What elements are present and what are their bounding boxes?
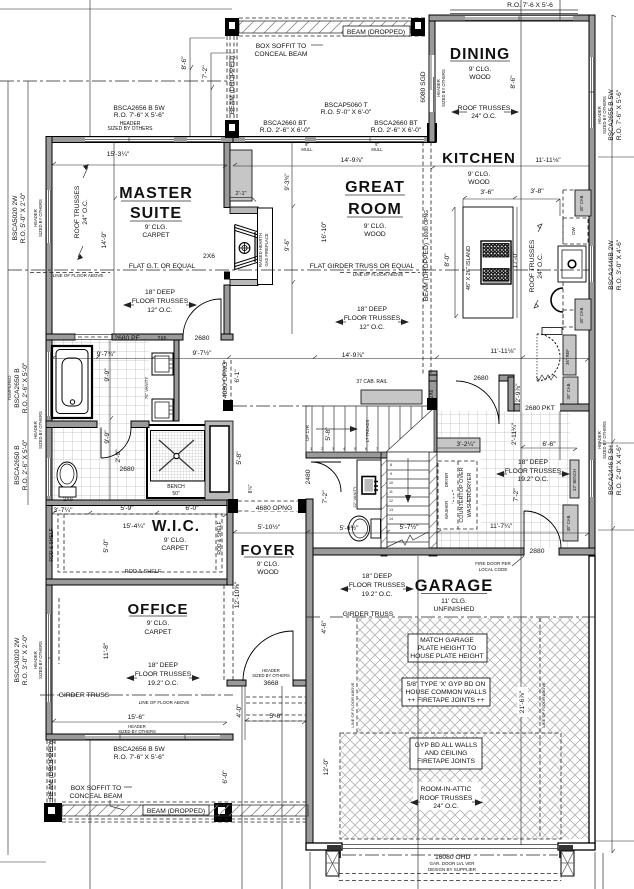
svg-text:2680 PKT: 2680 PKT (525, 405, 555, 412)
svg-text:SIZED BY OTHERS: SIZED BY OTHERS (108, 126, 154, 132)
svg-text:FLOOR TRUSSES: FLOOR TRUSSES (135, 671, 192, 678)
svg-text:15'-4¼": 15'-4¼" (123, 523, 146, 530)
svg-text:12'-10⅝": 12'-10⅝" (234, 581, 241, 608)
svg-text:WOOD: WOOD (257, 569, 279, 576)
svg-text:SIZED BY OTHERS: SIZED BY OTHERS (118, 729, 156, 734)
svg-text:BSCA2650 B: BSCA2650 B (14, 445, 21, 485)
svg-text:SIZED BY OTHERS: SIZED BY OTHERS (441, 69, 446, 107)
svg-text:FLAT GIRDER TRUSS OR EQUAL: FLAT GIRDER TRUSS OR EQUAL (310, 263, 415, 270)
svg-text:SIZED BY OTHERS: SIZED BY OTHERS (602, 96, 607, 134)
svg-text:12: 12 (389, 499, 393, 503)
svg-text:2480: 2480 (305, 469, 312, 484)
svg-text:CONCEAL BEAM: CONCEAL BEAM (70, 793, 123, 800)
svg-text:4: 4 (343, 447, 345, 451)
svg-text:GAS FIREPLACE: GAS FIREPLACE (264, 233, 269, 266)
svg-text:3'-7¼": 3'-7¼" (54, 507, 74, 514)
svg-text:2: 2 (321, 447, 323, 451)
svg-text:ROD & SHELF: ROD & SHELF (49, 528, 55, 561)
svg-text:R.O. 3'-0" X 2'-0": R.O. 3'-0" X 2'-0" (22, 634, 29, 685)
svg-text:WASHER: WASHER (444, 501, 449, 519)
svg-text:R.O. 7'-6 X 5'-6: R.O. 7'-6 X 5'-6 (507, 2, 553, 9)
svg-text:7'-2": 7'-2" (322, 490, 329, 504)
svg-text:MULL: MULL (301, 147, 313, 152)
svg-text:ROOF TRUSSES: ROOF TRUSSES (529, 239, 536, 292)
svg-text:BENCH: BENCH (167, 484, 185, 490)
svg-text:CARPET: CARPET (161, 545, 188, 552)
svg-text:CARPET: CARPET (144, 629, 171, 636)
svg-text:24" O.C.: 24" O.C. (433, 803, 459, 810)
svg-text:2880: 2880 (530, 548, 545, 555)
svg-text:R.O. 5'-0" X 2'-0": R.O. 5'-0" X 2'-0" (20, 192, 27, 243)
svg-text:2X6: 2X6 (429, 389, 435, 398)
svg-text:UP 17R: UP 17R (305, 424, 310, 440)
svg-text:SIZED BY OTHERS: SIZED BY OTHERS (38, 641, 43, 679)
svg-text:ROOF TRUSSES: ROOF TRUSSES (420, 795, 473, 802)
svg-text:8⅞": 8⅞" (248, 484, 254, 493)
svg-text:9' CLG.: 9' CLG. (164, 537, 187, 544)
svg-text:R.O. 2'-6" X 5'-0": R.O. 2'-6" X 5'-0" (22, 362, 29, 413)
svg-text:6'-6": 6'-6" (542, 441, 556, 448)
svg-text:R.O. 7'-6" X 5'-6": R.O. 7'-6" X 5'-6" (616, 89, 623, 140)
svg-text:WOOD: WOOD (468, 179, 490, 186)
svg-text:R.O. 2'-0" X 4'-6": R.O. 2'-0" X 4'-6" (616, 444, 623, 495)
svg-text:8'-6": 8'-6" (181, 56, 188, 70)
svg-text:LINE OF FLOOR ABOVE: LINE OF FLOOR ABOVE (350, 682, 355, 727)
svg-text:9' CLG.: 9' CLG. (147, 620, 170, 627)
svg-text:6'-0": 6'-0" (222, 770, 229, 784)
svg-text:BSCA2656 B 5W: BSCA2656 B 5W (113, 105, 165, 112)
svg-text:BSCA2655 B 5W: BSCA2655 B 5W (608, 89, 615, 141)
svg-text:14'-9⅞": 14'-9⅞" (341, 157, 364, 164)
svg-text:18" DEEP: 18" DEEP (518, 459, 548, 466)
svg-text:TEMPERED: TEMPERED (7, 375, 12, 401)
svg-text:5'-6½": 5'-6½" (340, 524, 360, 532)
svg-text:46" X 26" ISLAND: 46" X 26" ISLAND (466, 246, 472, 290)
svg-text:18" DEEP: 18" DEEP (145, 289, 175, 296)
svg-text:18" DEEP: 18" DEEP (148, 662, 178, 669)
svg-text:9' CLG.: 9' CLG. (257, 561, 280, 568)
svg-text:BSCA2656 B 5W: BSCA2656 B 5W (113, 746, 165, 753)
svg-text:24" O.C.: 24" O.C. (537, 253, 544, 279)
svg-text:LINE OF FLOOR ABOVE: LINE OF FLOOR ABOVE (139, 700, 190, 705)
svg-text:BSCA2660 BT: BSCA2660 BT (374, 120, 418, 127)
svg-text:2'-1": 2'-1" (236, 191, 247, 197)
svg-text:ROOM-IN-ATTIC: ROOM-IN-ATTIC (421, 786, 472, 793)
svg-text:BSCA2446B 2W: BSCA2446B 2W (608, 240, 615, 290)
svg-text:GYP BD ALL WALLS: GYP BD ALL WALLS (415, 742, 478, 749)
svg-text:5'-0": 5'-0" (103, 539, 110, 553)
svg-text:BOX SOFFIT TO: BOX SOFFIT TO (71, 785, 122, 792)
svg-text:GARAGE: GARAGE (415, 577, 493, 595)
svg-text:SUITE: SUITE (130, 205, 182, 222)
svg-text:30" CAB.: 30" CAB. (579, 306, 584, 323)
svg-text:FIRETAPE JOINTS: FIRETAPE JOINTS (417, 758, 475, 765)
svg-text:W.I.C.: W.I.C. (152, 518, 200, 535)
svg-text:BOX SOFFIT TO: BOX SOFFIT TO (256, 43, 307, 50)
svg-text:5'-10½": 5'-10½" (258, 523, 281, 531)
svg-text:FLOOR TRUSSES: FLOOR TRUSSES (349, 582, 406, 589)
svg-text:11' CLG.: 11' CLG. (441, 598, 467, 605)
svg-text:6: 6 (365, 447, 367, 451)
svg-text:5'-6": 5'-6" (269, 713, 283, 720)
svg-text:AND CEILING: AND CEILING (425, 750, 468, 757)
svg-text:50": 50" (172, 491, 180, 497)
svg-text:R.O. 2'-6" X 6'-0": R.O. 2'-6" X 6'-0" (371, 127, 422, 134)
svg-text:9'-7½": 9'-7½" (193, 349, 213, 357)
svg-text:11'-11⅛": 11'-11⅛" (535, 157, 561, 164)
svg-text:5'-8": 5'-8" (325, 427, 332, 441)
svg-text:9' CLG.: 9' CLG. (468, 171, 491, 178)
svg-text:24" O.C.: 24" O.C. (471, 113, 497, 120)
svg-text:R.O. 3'-0" X 4'-6": R.O. 3'-0" X 4'-6" (616, 239, 623, 290)
svg-text:2680: 2680 (474, 375, 489, 382)
svg-text:6'-0": 6'-0" (185, 505, 199, 512)
svg-text:FLOOR TRUSSES: FLOOR TRUSSES (132, 298, 189, 305)
svg-text:11'-11⅛": 11'-11⅛" (490, 348, 516, 355)
svg-text:UNFINISHED: UNFINISHED (434, 606, 475, 613)
svg-text:76" VANITY: 76" VANITY (144, 377, 149, 399)
svg-text:MULL: MULL (371, 147, 383, 152)
svg-text:WOOD: WOOD (364, 231, 386, 238)
svg-text:GAR. DOOR LVL VER: GAR. DOOR LVL VER (429, 861, 475, 866)
svg-text:30" CAB.: 30" CAB. (566, 382, 571, 399)
svg-text:3'-8": 3'-8" (530, 188, 544, 195)
svg-text:BSCA3020 2W: BSCA3020 2W (14, 637, 21, 683)
svg-text:17'-0": 17'-0" (512, 251, 519, 269)
svg-text:16080 OPNG: 16080 OPNG (424, 210, 430, 240)
svg-text:5'-9": 5'-9" (120, 505, 134, 512)
svg-text:R.O. 7'-6" X 5'-6": R.O. 7'-6" X 5'-6" (114, 112, 165, 119)
svg-text:17 TREADS: 17 TREADS (365, 419, 370, 442)
svg-text:WASHER/DRYER: WASHER/DRYER (467, 473, 473, 518)
svg-text:2'-9": 2'-9" (115, 449, 122, 463)
svg-text:9' CLG.: 9' CLG. (364, 223, 387, 230)
svg-text:R.O. 7'-6" X 5'-6": R.O. 7'-6" X 5'-6" (114, 754, 165, 761)
svg-text:9: 9 (390, 472, 392, 476)
svg-text:19.2" O.C.: 19.2" O.C. (518, 476, 549, 483)
svg-text:WOOD: WOOD (469, 74, 491, 81)
svg-text:9'-6": 9'-6" (285, 239, 291, 251)
svg-text:BEAM (DROPPED): BEAM (DROPPED) (347, 29, 405, 36)
svg-text:14: 14 (389, 517, 393, 521)
svg-text:8'-0": 8'-0" (444, 253, 451, 267)
svg-text:FLAT G.T. OR EQUAL: FLAT G.T. OR EQUAL (129, 263, 196, 270)
svg-text:ROOF TRUSSES: ROOF TRUSSES (74, 185, 81, 238)
svg-text:9'-9": 9'-9" (104, 368, 111, 382)
svg-text:5/8" TYPE 'X' GYP BD ON: 5/8" TYPE 'X' GYP BD ON (407, 681, 486, 688)
svg-text:4680 OPNG: 4680 OPNG (256, 505, 292, 512)
svg-text:5'-8": 5'-8" (236, 451, 243, 465)
svg-text:DESIGN BY SUPPLIER: DESIGN BY SUPPLIER (428, 867, 477, 872)
svg-text:9'-7¾": 9'-7¾" (97, 351, 117, 358)
svg-text:1: 1 (310, 447, 312, 451)
svg-text:2'-9⅞": 2'-9⅞" (515, 383, 522, 403)
svg-text:2680: 2680 (120, 466, 135, 473)
svg-text:19.2" O.C.: 19.2" O.C. (148, 680, 179, 687)
svg-text:R.O. 2'-6" X 6'-0": R.O. 2'-6" X 6'-0" (260, 127, 311, 134)
svg-text:11'-8": 11'-8" (103, 642, 110, 659)
svg-text:RAISED HEARTH: RAISED HEARTH (258, 233, 263, 267)
svg-text:HOUSE PLATE HEIGHT: HOUSE PLATE HEIGHT (410, 653, 483, 660)
svg-text:OFFICE: OFFICE (128, 601, 189, 618)
svg-text:BSCA2660 BT: BSCA2660 BT (263, 120, 307, 127)
svg-text:13: 13 (389, 508, 393, 512)
svg-text:SIZED BY OTHERS: SIZED BY OTHERS (38, 199, 43, 237)
svg-text:5'-7½": 5'-7½" (400, 523, 420, 531)
svg-text:LINE OF FLOOR ABOVE: LINE OF FLOOR ABOVE (541, 682, 546, 727)
svg-text:FOYER: FOYER (241, 543, 296, 559)
svg-text:32" BENCH: 32" BENCH (572, 469, 577, 491)
svg-text:ROD & SHELF: ROD & SHELF (217, 521, 223, 554)
svg-text:SIZED BY OTHERS: SIZED BY OTHERS (602, 421, 607, 459)
svg-text:SIZED BY OTHERS: SIZED BY OTHERS (38, 411, 43, 449)
svg-text:9'-9": 9'-9" (104, 430, 111, 444)
svg-text:36" REF: 36" REF (565, 349, 570, 365)
svg-text:3'-2¼": 3'-2¼" (457, 441, 477, 448)
svg-text:11: 11 (389, 490, 393, 494)
svg-text:BSCA2446 B 5H: BSCA2446 B 5H (608, 445, 615, 495)
svg-text:30" CAB.: 30" CAB. (579, 194, 584, 211)
svg-text:2'-11¼": 2'-11¼" (511, 422, 518, 445)
svg-text:9' CLG.: 9' CLG. (469, 66, 492, 73)
svg-text:8: 8 (390, 463, 392, 467)
svg-text:CARPET: CARPET (142, 232, 169, 239)
svg-text:5: 5 (354, 447, 356, 451)
svg-text:MATCH GARAGE: MATCH GARAGE (420, 637, 474, 644)
svg-text:BEAM (DROPPED): BEAM (DROPPED) (423, 243, 430, 301)
svg-text:30" CAB.: 30" CAB. (566, 514, 571, 531)
svg-text:6080 SGD: 6080 SGD (420, 71, 427, 102)
svg-text:FIRE DOOR PER: FIRE DOOR PER (475, 561, 511, 566)
svg-text:KITCHEN: KITCHEN (442, 150, 516, 167)
svg-text:7: 7 (376, 447, 378, 451)
svg-text:FLOOR TRUSSES: FLOOR TRUSSES (344, 315, 401, 322)
svg-text:BEAM (DROPPED): BEAM (DROPPED) (147, 808, 205, 815)
svg-text:4'-0": 4'-0" (236, 704, 243, 718)
svg-text:19.2" O.C.: 19.2" O.C. (362, 591, 393, 598)
svg-text:LINE OF FLOOR ABOVE: LINE OF FLOOR ABOVE (53, 273, 104, 278)
svg-text:3668: 3668 (264, 680, 279, 687)
svg-text:R.O. 5'-0" X 6'-0": R.O. 5'-0" X 6'-0" (321, 109, 372, 116)
svg-text:24" O.C.: 24" O.C. (82, 199, 89, 225)
svg-text:14'-9⅞": 14'-9⅞" (342, 352, 365, 359)
svg-text:11'-7¼": 11'-7¼" (490, 523, 513, 530)
svg-text:++ FIRETAPE JOINTS ++: ++ FIRETAPE JOINTS ++ (407, 697, 484, 704)
svg-text:10: 10 (389, 481, 393, 485)
svg-text:PLATE HEIGHT TO: PLATE HEIGHT TO (418, 645, 477, 652)
svg-text:ROOF TRUSSES: ROOF TRUSSES (458, 105, 511, 112)
svg-text:3'-6": 3'-6" (480, 189, 494, 196)
svg-text:4080 OPNG: 4080 OPNG (222, 362, 229, 398)
svg-text:7'-2": 7'-2" (202, 65, 209, 79)
svg-text:CONCEAL BEAM: CONCEAL BEAM (255, 51, 308, 58)
svg-text:4'-6": 4'-6" (321, 620, 328, 634)
svg-text:16'-10": 16'-10" (321, 221, 328, 242)
svg-text:12" O.C.: 12" O.C. (147, 307, 173, 314)
svg-text:15'-3¼": 15'-3¼" (107, 151, 130, 158)
svg-text:18" DEEP: 18" DEEP (362, 573, 392, 580)
svg-text:12" O.C.: 12" O.C. (359, 324, 385, 331)
svg-text:15'-6": 15'-6" (127, 714, 145, 721)
svg-text:9'-3¾": 9'-3¾" (285, 174, 291, 191)
svg-text:DINING: DINING (450, 46, 510, 63)
svg-text:COUNTERTOP OVER: COUNTERTOP OVER (459, 467, 465, 522)
svg-text:ROOM: ROOM (348, 201, 402, 218)
svg-text:14'-9": 14'-9" (101, 231, 108, 249)
svg-text:ROD & SHELF: ROD & SHELF (125, 569, 162, 575)
svg-text:BEAM (DROPPED): BEAM (DROPPED) (48, 741, 55, 799)
svg-text:2X6: 2X6 (63, 497, 73, 503)
svg-text:GREAT: GREAT (345, 179, 405, 196)
svg-text:37 CAB. RAIL: 37 CAB. RAIL (356, 379, 387, 385)
svg-text:MASTER: MASTER (119, 185, 193, 202)
svg-text:BSCAP5060 T: BSCAP5060 T (324, 102, 367, 109)
svg-text:8'-6": 8'-6" (510, 75, 517, 89)
svg-text:FLOOR TRUSSES: FLOOR TRUSSES (505, 468, 562, 475)
svg-text:7'-2": 7'-2" (513, 488, 520, 502)
svg-text:R.O. 2'-6" X 5'-0": R.O. 2'-6" X 5'-0" (22, 439, 29, 490)
svg-text:2X6: 2X6 (158, 336, 167, 342)
svg-text:3: 3 (332, 447, 334, 451)
svg-text:18" DEEP: 18" DEEP (357, 306, 387, 313)
svg-text:'16080 OHD: '16080 OHD (434, 854, 471, 861)
svg-text:SIZED BY OTHERS: SIZED BY OTHERS (252, 673, 290, 678)
svg-text:22" VANITY: 22" VANITY (352, 486, 357, 507)
svg-text:9' CLG.: 9' CLG. (145, 224, 168, 231)
svg-text:BSCA5020 2W: BSCA5020 2W (12, 195, 19, 241)
svg-text:2X6: 2X6 (203, 253, 215, 260)
svg-text:2680 PF: 2680 PF (114, 335, 139, 342)
svg-text:BSCA2650 B: BSCA2650 B (14, 368, 21, 408)
svg-text:21'-6⅞": 21'-6⅞" (519, 690, 526, 713)
svg-text:2680: 2680 (195, 335, 210, 342)
svg-text:BEAM (DROPPED): BEAM (DROPPED) (229, 56, 236, 114)
svg-text:LOCAL CODE: LOCAL CODE (479, 567, 508, 572)
svg-text:GIRDER TRUSS: GIRDER TRUSS (59, 692, 110, 699)
svg-text:DRYER: DRYER (444, 473, 449, 488)
svg-text:6'-1": 6'-1" (234, 369, 241, 383)
svg-text:12'-0": 12'-0" (323, 758, 330, 776)
svg-text:DW: DW (571, 227, 576, 235)
